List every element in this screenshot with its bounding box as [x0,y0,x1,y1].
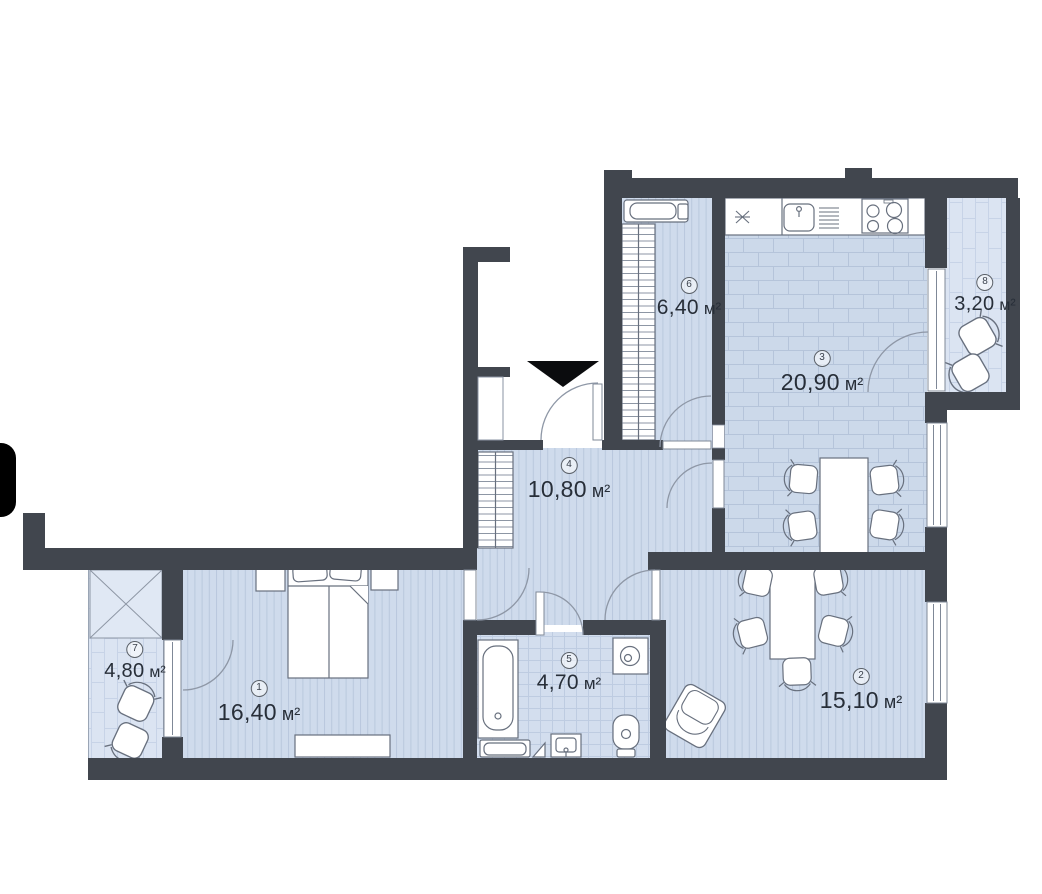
floorplan-page: 1 16,40м² 2 15,10м² 3 20,90м² 4 10,80м² … [0,0,1042,894]
wall [23,513,45,548]
floorplan-svg [0,0,1042,894]
wall [925,410,947,423]
wall [604,170,632,198]
wall [1006,198,1020,394]
wall [712,198,725,425]
wall [88,758,947,780]
wall [650,620,666,760]
kitchen-window [927,423,947,527]
bathroom-sink-icon [551,734,581,757]
wall [478,247,510,262]
terrace-cross-marking [90,570,162,638]
bedroom-door-leaf [464,570,476,620]
wall [478,367,510,377]
wall [463,620,477,760]
room-4-floor-lobe [477,555,655,625]
wall [463,247,478,548]
floors [88,196,1008,760]
wall [602,440,663,450]
bed-icon [288,562,368,678]
wall [632,178,1018,198]
map-pin-fragment [0,443,16,517]
bathroom-door-leaf [536,592,544,635]
wall [712,508,725,554]
wall [604,198,622,450]
wall [925,195,947,268]
wall [162,570,183,640]
bathtub-icon [478,640,518,738]
kitchen-counter [725,198,925,235]
balcony-7-door-leaf [164,640,181,737]
wall [925,527,947,602]
balcony-8-door-leaf [928,269,945,391]
stove-icon [862,199,908,234]
wall [925,703,947,760]
toilet-icon [613,715,639,757]
wall [925,392,1020,410]
wardrobe-icon [622,224,655,440]
washing-machine-icon [613,638,648,674]
room-6-door-leaf [663,441,711,449]
entrance-door-leaf [593,384,602,440]
hall-cabinet [624,200,688,222]
wall [23,548,477,570]
entrance-arrow-icon [527,361,599,387]
living-room-door-leaf [652,570,660,620]
wall [477,620,540,635]
wall [583,620,650,635]
wall [712,448,725,460]
wall-jamb-gap [713,425,725,448]
wall [162,737,183,758]
wall [478,440,543,450]
dresser [295,735,390,757]
living-room-window [927,602,947,703]
entrance-door-arc [541,383,598,440]
wall [648,552,925,570]
hall-wardrobe-icon [478,452,513,548]
utility-niche [478,377,503,440]
kitchen-door-leaf [713,460,724,508]
wall [845,168,872,178]
